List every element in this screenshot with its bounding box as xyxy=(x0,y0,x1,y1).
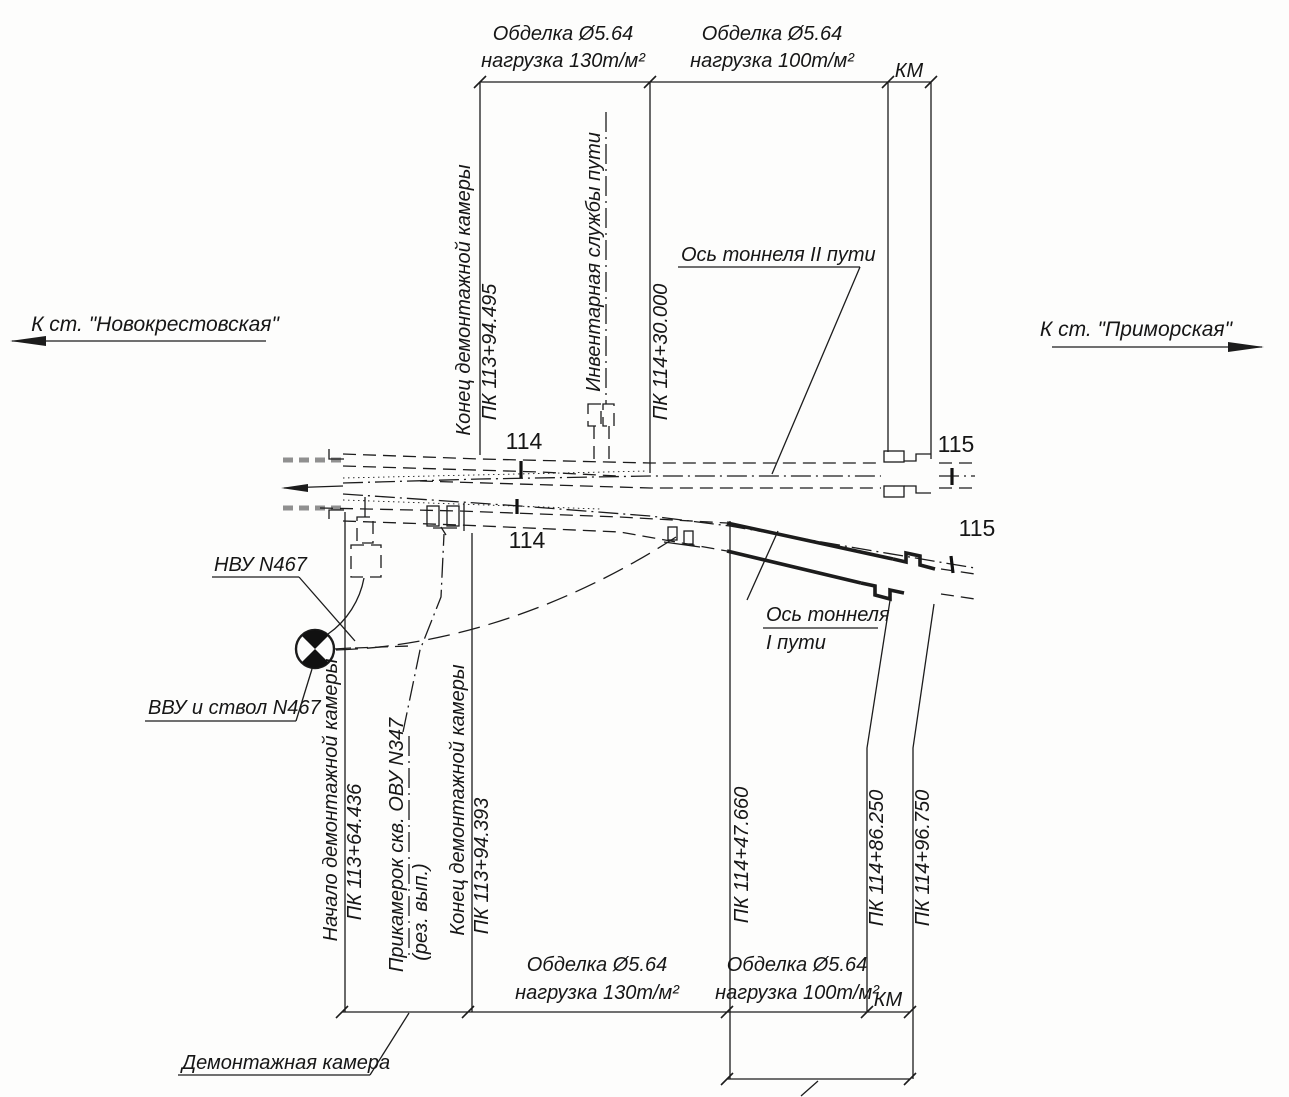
portal-step xyxy=(904,454,931,461)
picket-115-label: 115 xyxy=(959,515,996,541)
pk114-86-label: ПК 114+86.250 xyxy=(866,790,888,927)
picket-115-label: 115 xyxy=(938,431,975,457)
prikamerok-leader xyxy=(403,534,444,732)
arrowhead-right-icon xyxy=(1228,342,1264,352)
sub-dim-leader xyxy=(801,1081,818,1096)
pk114-47-label: ПК 114+47.660 xyxy=(731,787,753,924)
pk114-96-label: ПК 114+96.750 xyxy=(912,790,934,927)
junction-block xyxy=(668,527,677,540)
axis-track1-label-line2: I пути xyxy=(766,632,826,654)
picket-114-label: 114 xyxy=(506,428,543,454)
drawing-page: Обделка Ø5.64 нагрузка 130т/м² Обделка Ø… xyxy=(0,0,1289,1097)
station-arrows: К ст. "Новокрестовская" К ст. "Приморска… xyxy=(10,313,1264,352)
inventory-block xyxy=(588,404,601,426)
tunnel1-bottom-lining xyxy=(727,551,861,583)
load-label-130: нагрузка 130т/м² xyxy=(481,50,646,72)
shaft-connector xyxy=(328,578,364,634)
adit-block xyxy=(447,506,459,526)
start-chamber-pk: ПК 113+64.436 xyxy=(344,783,366,920)
axis-track2-label: Ось тоннеля II пути xyxy=(681,244,876,266)
inventory-label: Инвентарная службы пути xyxy=(583,132,605,392)
load-label-130: нагрузка 130т/м² xyxy=(515,982,680,1004)
picket-tick-115 xyxy=(951,556,953,573)
lining-label-130: Обделка Ø5.64 xyxy=(527,954,667,976)
shaft-body xyxy=(351,545,381,577)
tunnel-plan-drawing: Обделка Ø5.64 нагрузка 130т/м² Обделка Ø… xyxy=(0,0,1289,1097)
station-right-label: К ст. "Приморская" xyxy=(1040,318,1234,341)
vvu-label: ВВУ и ствол N467 xyxy=(148,697,321,719)
rail-line xyxy=(343,500,600,509)
chamber-step xyxy=(329,510,344,519)
km-label: КМ xyxy=(874,989,903,1011)
prikamerok-label-line1: Прикамерок скв. ОВУ N347 xyxy=(386,717,408,972)
portal-step xyxy=(904,486,931,493)
junction-block xyxy=(684,531,693,544)
portal-block xyxy=(884,451,904,462)
tunnel2-bottom-edge xyxy=(420,481,881,488)
nvu-label: НВУ N467 xyxy=(214,554,308,576)
end-chamber-bottom-label: Конец демонтажной камеры xyxy=(447,664,469,935)
load-label-100: нагрузка 100т/м² xyxy=(690,50,855,72)
axis-track1-label-line1: Ось тоннеля xyxy=(766,604,890,626)
shaft-neck xyxy=(357,517,373,543)
lining-label-100: Обделка Ø5.64 xyxy=(702,23,842,45)
picket-114-label: 114 xyxy=(509,527,546,553)
adit-block xyxy=(427,506,439,526)
tunnel1-top-stub xyxy=(941,569,975,574)
leader-line xyxy=(772,267,860,474)
alignment-curve xyxy=(336,537,676,650)
end-chamber-bottom-pk: ПК 113+94.393 xyxy=(471,798,493,935)
station-left-label: К ст. "Новокрестовская" xyxy=(31,313,280,336)
tunnel1-top-edge-dashed xyxy=(320,508,727,523)
callouts: Ось тоннеля II пути Ось тоннеля I пути Н… xyxy=(145,132,890,1075)
chamber-label: Демонтажная камера xyxy=(180,1052,390,1074)
tunnel2-top-edge xyxy=(343,454,881,463)
lining-label-130: Обделка Ø5.64 xyxy=(493,23,633,45)
axis-arrowhead-icon xyxy=(281,484,308,492)
tunnel-track1: 114 115 xyxy=(320,494,995,650)
lining-label-100: Обделка Ø5.64 xyxy=(727,954,867,976)
start-chamber-label: Начало демонтажной камеры xyxy=(320,658,342,941)
end-chamber-top-pk: ПК 113+94.495 xyxy=(479,283,501,420)
arrowhead-left-icon xyxy=(10,336,46,346)
leader-line xyxy=(747,531,778,600)
inventory-block xyxy=(603,404,614,426)
tunnel1-top-lining xyxy=(727,523,893,559)
tunnel1-bottom-stub xyxy=(941,594,975,599)
tunnel1-bottom-portal xyxy=(861,583,904,599)
load-label-100: нагрузка 100т/м² xyxy=(715,982,880,1004)
portal-block xyxy=(884,486,904,497)
tunnel2-axis xyxy=(343,476,881,483)
prikamerok-label-line2: (рез. вып.) xyxy=(410,863,432,960)
end-chamber-top-label: Конец демонтажной камеры xyxy=(453,164,475,435)
pk114-30-label: ПК 114+30.000 xyxy=(650,284,672,421)
bottom-dimension: Обделка Ø5.64 нагрузка 130т/м² Обделка Ø… xyxy=(336,954,916,1096)
km-label: КМ xyxy=(895,60,924,82)
tunnel2-inner-edge xyxy=(343,466,618,476)
